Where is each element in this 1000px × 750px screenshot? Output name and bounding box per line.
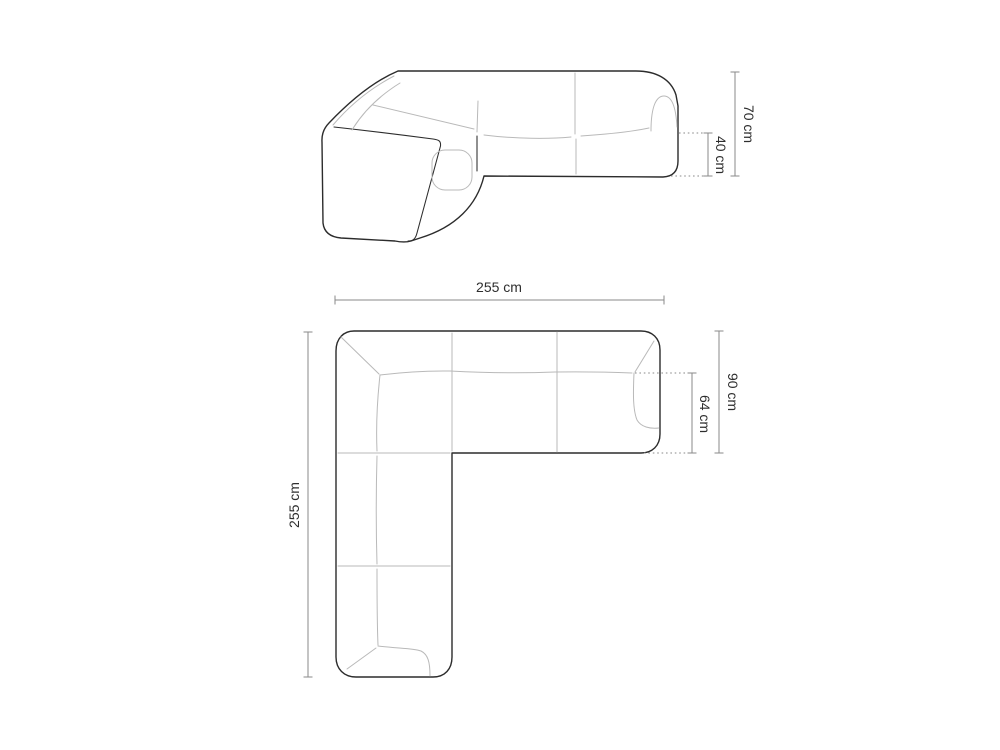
dimension-seat-height: 40 cm (671, 133, 729, 176)
front-view: 70 cm 40 cm (322, 71, 757, 242)
sofa-dimension-diagram: 70 cm 40 cm (0, 0, 1000, 750)
top-right-arm-diagonal (635, 341, 654, 372)
diagram-canvas: 70 cm 40 cm (0, 0, 1000, 750)
dimension-total-height: 70 cm (731, 72, 758, 176)
dimension-seat-depth-label: 64 cm (697, 395, 713, 433)
front-seat-seam-left (484, 135, 571, 138)
front-corner-backrest-arc-1 (333, 76, 394, 125)
front-right-armrest-arc (651, 96, 677, 131)
top-view: 255 cm 255 cm 90 cm 64 cm (286, 279, 741, 677)
front-sofa-outline (322, 71, 678, 242)
front-corner-backrest-arc-2 (352, 83, 400, 130)
top-sofa-outline (336, 331, 660, 677)
dimension-total-depth: 255 cm (286, 332, 313, 677)
front-seat-seam-right (581, 128, 649, 136)
front-corner-armrest (334, 127, 441, 241)
top-backrest-seam-vertical (376, 375, 380, 645)
dimension-total-height-label: 70 cm (741, 105, 757, 143)
top-bottom-arm-diagonal (347, 648, 376, 669)
dimension-seat-height-label: 40 cm (713, 136, 729, 174)
dimension-body-depth: 90 cm (715, 331, 742, 453)
top-bottom-arm-inner-edge (378, 646, 430, 676)
dimension-seat-depth: 64 cm (635, 373, 713, 453)
front-corner-seat-edge-upper (477, 101, 478, 132)
front-backrest-seat-seam (373, 105, 474, 129)
top-backrest-seam-horizontal (380, 371, 632, 375)
top-corner-diagonal (341, 337, 379, 374)
dimension-total-width-label: 255 cm (476, 279, 522, 295)
dimension-total-depth-label: 255 cm (286, 482, 302, 528)
top-right-arm-inner-edge (633, 373, 659, 428)
front-module-divide (575, 73, 576, 174)
dimension-total-width: 255 cm (335, 279, 664, 305)
dimension-body-depth-label: 90 cm (725, 373, 741, 411)
